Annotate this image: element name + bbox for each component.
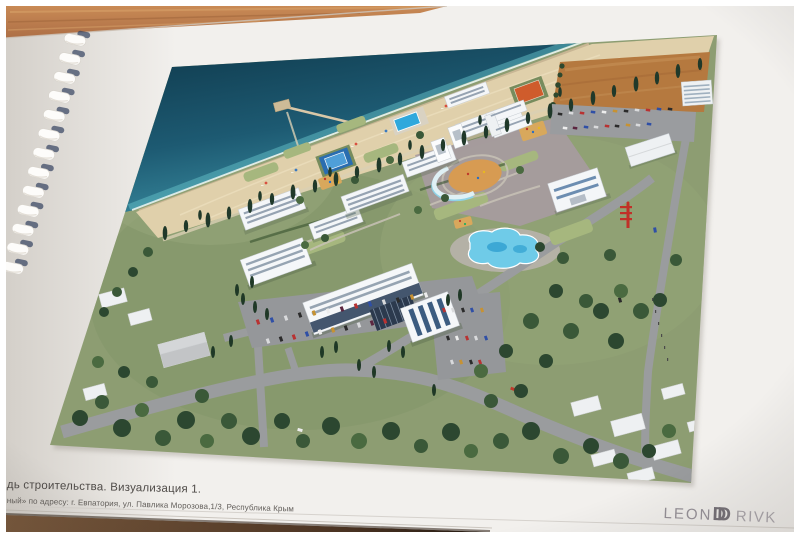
photo-vignette: [6, 6, 794, 532]
photo-frame: дь строительства. Визуализация 1. ный» п…: [0, 0, 800, 537]
brand-logo-text-left: LEON: [663, 505, 713, 524]
brand-logo-text-right: RIVK: [736, 508, 778, 527]
brand-logo-monogram-2: D: [717, 505, 731, 525]
photo-scene: [6, 6, 794, 532]
photograph: дь строительства. Визуализация 1. ный» п…: [6, 6, 794, 532]
